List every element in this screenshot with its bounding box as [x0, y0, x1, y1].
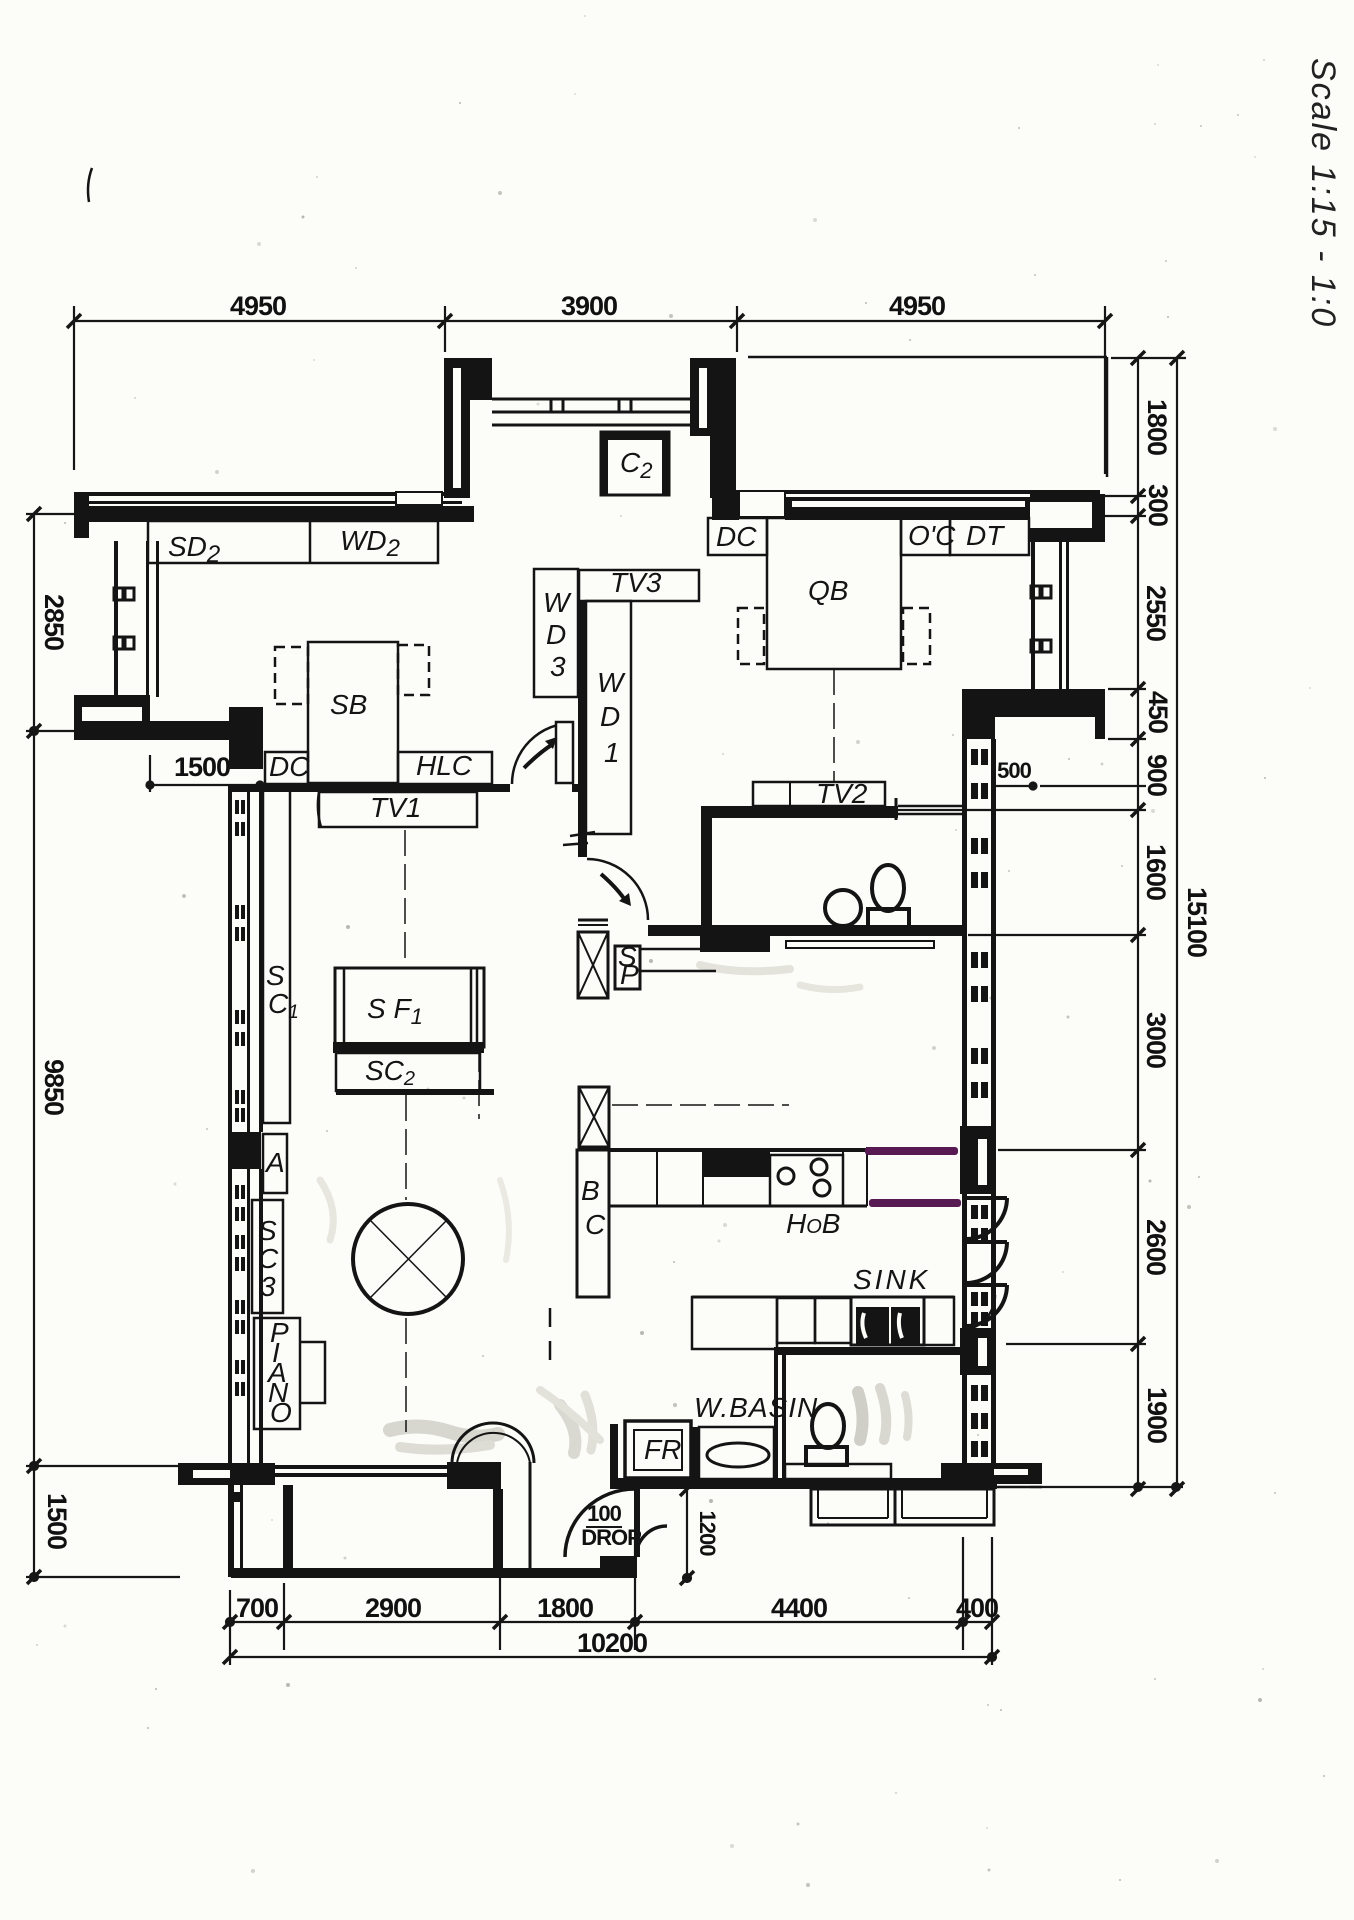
svg-text:1200: 1200 [695, 1511, 720, 1557]
svg-text:SB: SB [330, 689, 367, 720]
svg-text:1500: 1500 [42, 1493, 72, 1549]
svg-text:DROP: DROP [581, 1525, 641, 1550]
svg-text:C: C [258, 1243, 279, 1274]
svg-text:HLC: HLC [416, 750, 473, 781]
svg-text:W: W [597, 667, 626, 698]
svg-text:O'C: O'C [908, 520, 956, 551]
svg-text:3: 3 [260, 1271, 276, 1302]
svg-text:10200: 10200 [577, 1628, 647, 1658]
svg-text:4950: 4950 [230, 291, 286, 321]
svg-text:2550: 2550 [1141, 585, 1171, 641]
svg-text:2600: 2600 [1141, 1219, 1171, 1275]
svg-text:SINK: SINK [853, 1264, 930, 1295]
svg-text:TV2: TV2 [816, 778, 868, 809]
svg-text:A: A [264, 1147, 285, 1178]
svg-text:400: 400 [956, 1593, 998, 1623]
svg-text:P: P [620, 959, 639, 990]
svg-text:1: 1 [604, 737, 620, 768]
svg-text:2900: 2900 [365, 1593, 421, 1623]
svg-text:450: 450 [1143, 691, 1173, 733]
svg-text:QB: QB [808, 575, 848, 606]
svg-text:1800: 1800 [1142, 399, 1172, 455]
svg-text:1800: 1800 [537, 1593, 593, 1623]
svg-text:9850: 9850 [39, 1059, 69, 1115]
svg-text:DC: DC [716, 521, 757, 552]
svg-text:3000: 3000 [1141, 1012, 1171, 1068]
svg-text:W: W [543, 587, 572, 618]
svg-text:D: D [546, 619, 566, 650]
svg-text:4950: 4950 [889, 291, 945, 321]
svg-text:W.BASIN: W.BASIN [694, 1392, 818, 1423]
svg-text:1600: 1600 [1141, 844, 1171, 900]
svg-text:B: B [581, 1175, 600, 1206]
svg-text:15100: 15100 [1182, 887, 1212, 957]
svg-text:TV1: TV1 [370, 792, 421, 823]
svg-text:D: D [600, 701, 620, 732]
svg-text:4400: 4400 [771, 1593, 827, 1623]
svg-text:900: 900 [1142, 754, 1172, 796]
svg-text:TV3: TV3 [610, 567, 662, 598]
svg-text:300: 300 [1143, 484, 1173, 526]
svg-text:2850: 2850 [39, 594, 69, 650]
svg-text:S: S [258, 1215, 277, 1246]
svg-text:O: O [270, 1397, 292, 1428]
svg-text:S: S [266, 960, 285, 991]
svg-text:3: 3 [550, 651, 566, 682]
svg-text:500: 500 [997, 758, 1031, 783]
svg-text:1900: 1900 [1142, 1387, 1172, 1443]
svg-text:DC: DC [269, 751, 310, 782]
svg-text:FR: FR [644, 1434, 681, 1465]
svg-text:3900: 3900 [561, 291, 617, 321]
svg-text:DT: DT [966, 520, 1005, 551]
svg-text:Scale 1:15 - 1:0: Scale 1:15 - 1:0 [1304, 58, 1342, 328]
svg-text:C: C [585, 1209, 606, 1240]
svg-text:700: 700 [236, 1593, 278, 1623]
svg-text:1500: 1500 [174, 752, 230, 782]
